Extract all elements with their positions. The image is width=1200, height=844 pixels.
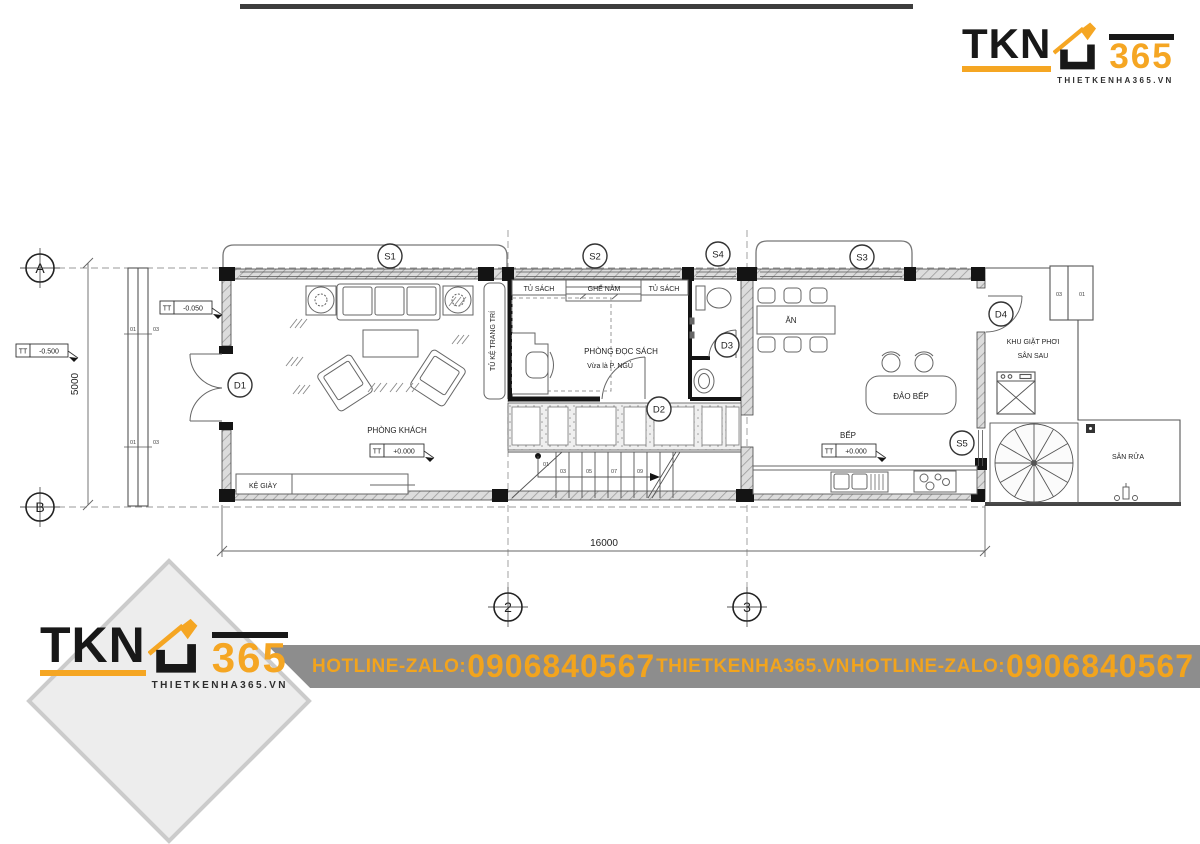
stool bbox=[915, 354, 933, 372]
website-label: THIETKENHA365.VN bbox=[656, 656, 850, 678]
svg-text:TT: TT bbox=[373, 449, 382, 456]
section-marker-s3: S3 bbox=[856, 253, 868, 264]
room-label-shoes: KỆ GIÀY bbox=[249, 481, 277, 490]
svg-text:TT: TT bbox=[163, 306, 172, 313]
kitchen-dining: ĂN ĐẢO BẾP BẾP bbox=[753, 288, 977, 494]
logo-orange-bar bbox=[962, 66, 1051, 72]
wall-tag: 01 bbox=[1079, 292, 1085, 298]
porch-wall: 01 03 01 03 bbox=[124, 268, 159, 506]
stair-number: 07 bbox=[611, 469, 617, 475]
stair-number: 05 bbox=[586, 469, 592, 475]
level-flag-1: TT -0.050 bbox=[160, 301, 222, 319]
faucet bbox=[1115, 483, 1138, 501]
stairs: 01 03 05 07 09 bbox=[508, 403, 741, 498]
grid-row-b: B bbox=[35, 499, 44, 515]
sink bbox=[694, 369, 714, 393]
grid-col-3: 3 bbox=[743, 599, 751, 615]
level-flag-2: TT +0.000 bbox=[370, 444, 434, 462]
stair-number: 03 bbox=[560, 469, 566, 475]
wall-tag: 03 bbox=[153, 440, 159, 446]
wall-tag: 03 bbox=[153, 327, 159, 333]
dim-16000: 16000 bbox=[590, 538, 618, 549]
dim-5000: 5000 bbox=[70, 372, 81, 395]
house-icon bbox=[148, 618, 210, 676]
room-label-kitchen: BẾP bbox=[840, 430, 856, 440]
room-label-island: ĐẢO BẾP bbox=[893, 391, 929, 401]
page: { "header": { "logo": { "name": "TKN", "… bbox=[0, 0, 1200, 800]
svg-text:+0.000: +0.000 bbox=[845, 449, 867, 456]
room-label-deco: TỦ KỆ TRANG TRÍ bbox=[488, 311, 497, 371]
stair-number: 09 bbox=[637, 469, 643, 475]
brand-logo-bottom: TKN 365 THIETKENHA365.VN bbox=[40, 618, 288, 691]
stool bbox=[882, 354, 900, 372]
level-flag-0: TT -0.500 bbox=[16, 344, 78, 362]
house-icon bbox=[1053, 22, 1107, 72]
wall-tag: 01 bbox=[130, 440, 136, 446]
hotline-number: 0906840567 bbox=[1006, 648, 1194, 685]
section-marker-s5: S5 bbox=[956, 439, 968, 450]
section-marker-s4: S4 bbox=[712, 250, 724, 261]
label-bookshelf-left: TỦ SÁCH bbox=[524, 284, 555, 293]
living-room: PHÒNG KHÁCH KỆ GIÀY TỦ KỆ TRANG TRÍ bbox=[236, 283, 505, 494]
room-label-laundry2: SÂN SAU bbox=[1018, 351, 1049, 360]
armchair bbox=[316, 354, 374, 413]
label-bookshelf-right: TỦ SÁCH bbox=[649, 284, 680, 293]
room-label-laundry1: KHU GIẶT PHƠI bbox=[1007, 337, 1060, 346]
svg-text:-0.500: -0.500 bbox=[39, 349, 59, 356]
tree bbox=[995, 424, 1073, 502]
brand-tagline: THIETKENHA365.VN bbox=[152, 680, 288, 691]
svg-text:-0.050: -0.050 bbox=[183, 306, 203, 313]
laundry-yard: 03 01 KHU GIẶT PHƠI SÂN SAU SÂN RỬA bbox=[985, 266, 1181, 506]
svg-text:TT: TT bbox=[19, 349, 28, 356]
svg-text:+0.000: +0.000 bbox=[393, 449, 415, 456]
logo-orange-bar bbox=[40, 670, 146, 676]
section-marker-s1: S1 bbox=[384, 252, 396, 263]
hotline-banner: HOTLINE-ZALO: 0906840567 THIETKENHA365.V… bbox=[240, 645, 1200, 688]
door-marker-d4: D4 bbox=[995, 310, 1007, 321]
hotline-number: 0906840567 bbox=[467, 648, 655, 685]
grid-col-2: 2 bbox=[504, 599, 512, 615]
wall-tag: 01 bbox=[130, 327, 136, 333]
wall-tag: 03 bbox=[1056, 292, 1062, 298]
hotline-label: HOTLINE-ZALO: bbox=[851, 656, 1005, 678]
bay-outlines bbox=[223, 241, 912, 268]
door-marker-d3: D3 bbox=[721, 341, 733, 352]
brand-tagline: THIETKENHA365.VN bbox=[1057, 76, 1174, 85]
room-label-living: PHÒNG KHÁCH bbox=[367, 426, 427, 435]
door-marker-d1: D1 bbox=[234, 381, 246, 392]
brand-name: TKN bbox=[40, 623, 146, 667]
stair-number: 01 bbox=[543, 462, 549, 468]
room-label-reading-sub: Vừa là P. NGỦ bbox=[587, 361, 633, 370]
room-label-washyard: SÂN RỬA bbox=[1112, 452, 1144, 461]
hotline-label: HOTLINE-ZALO: bbox=[312, 656, 466, 678]
reading-room: TỦ SÁCH GHẾ NẰM TỦ SÁCH PHÒNG ĐỌC SÁCH V… bbox=[512, 280, 688, 394]
section-marker-s2: S2 bbox=[589, 252, 601, 263]
toilet bbox=[696, 286, 705, 310]
grid-row-a: A bbox=[35, 260, 45, 276]
washing-machine bbox=[997, 372, 1035, 414]
coffee-table bbox=[363, 330, 418, 357]
brand-name: TKN bbox=[962, 26, 1051, 63]
desk-chair bbox=[526, 352, 548, 378]
brand-logo-top: TKN 365 THIETKENHA365.VN bbox=[962, 22, 1174, 85]
brand-number: 365 bbox=[1109, 42, 1173, 72]
room-label-dining: ĂN bbox=[785, 316, 796, 325]
brand-number: 365 bbox=[212, 640, 288, 676]
room-label-reading: PHÒNG ĐỌC SÁCH bbox=[584, 347, 658, 356]
level-flag-3: TT +0.000 bbox=[822, 444, 886, 462]
door-marker-d2: D2 bbox=[653, 405, 665, 416]
svg-text:TT: TT bbox=[825, 449, 834, 456]
